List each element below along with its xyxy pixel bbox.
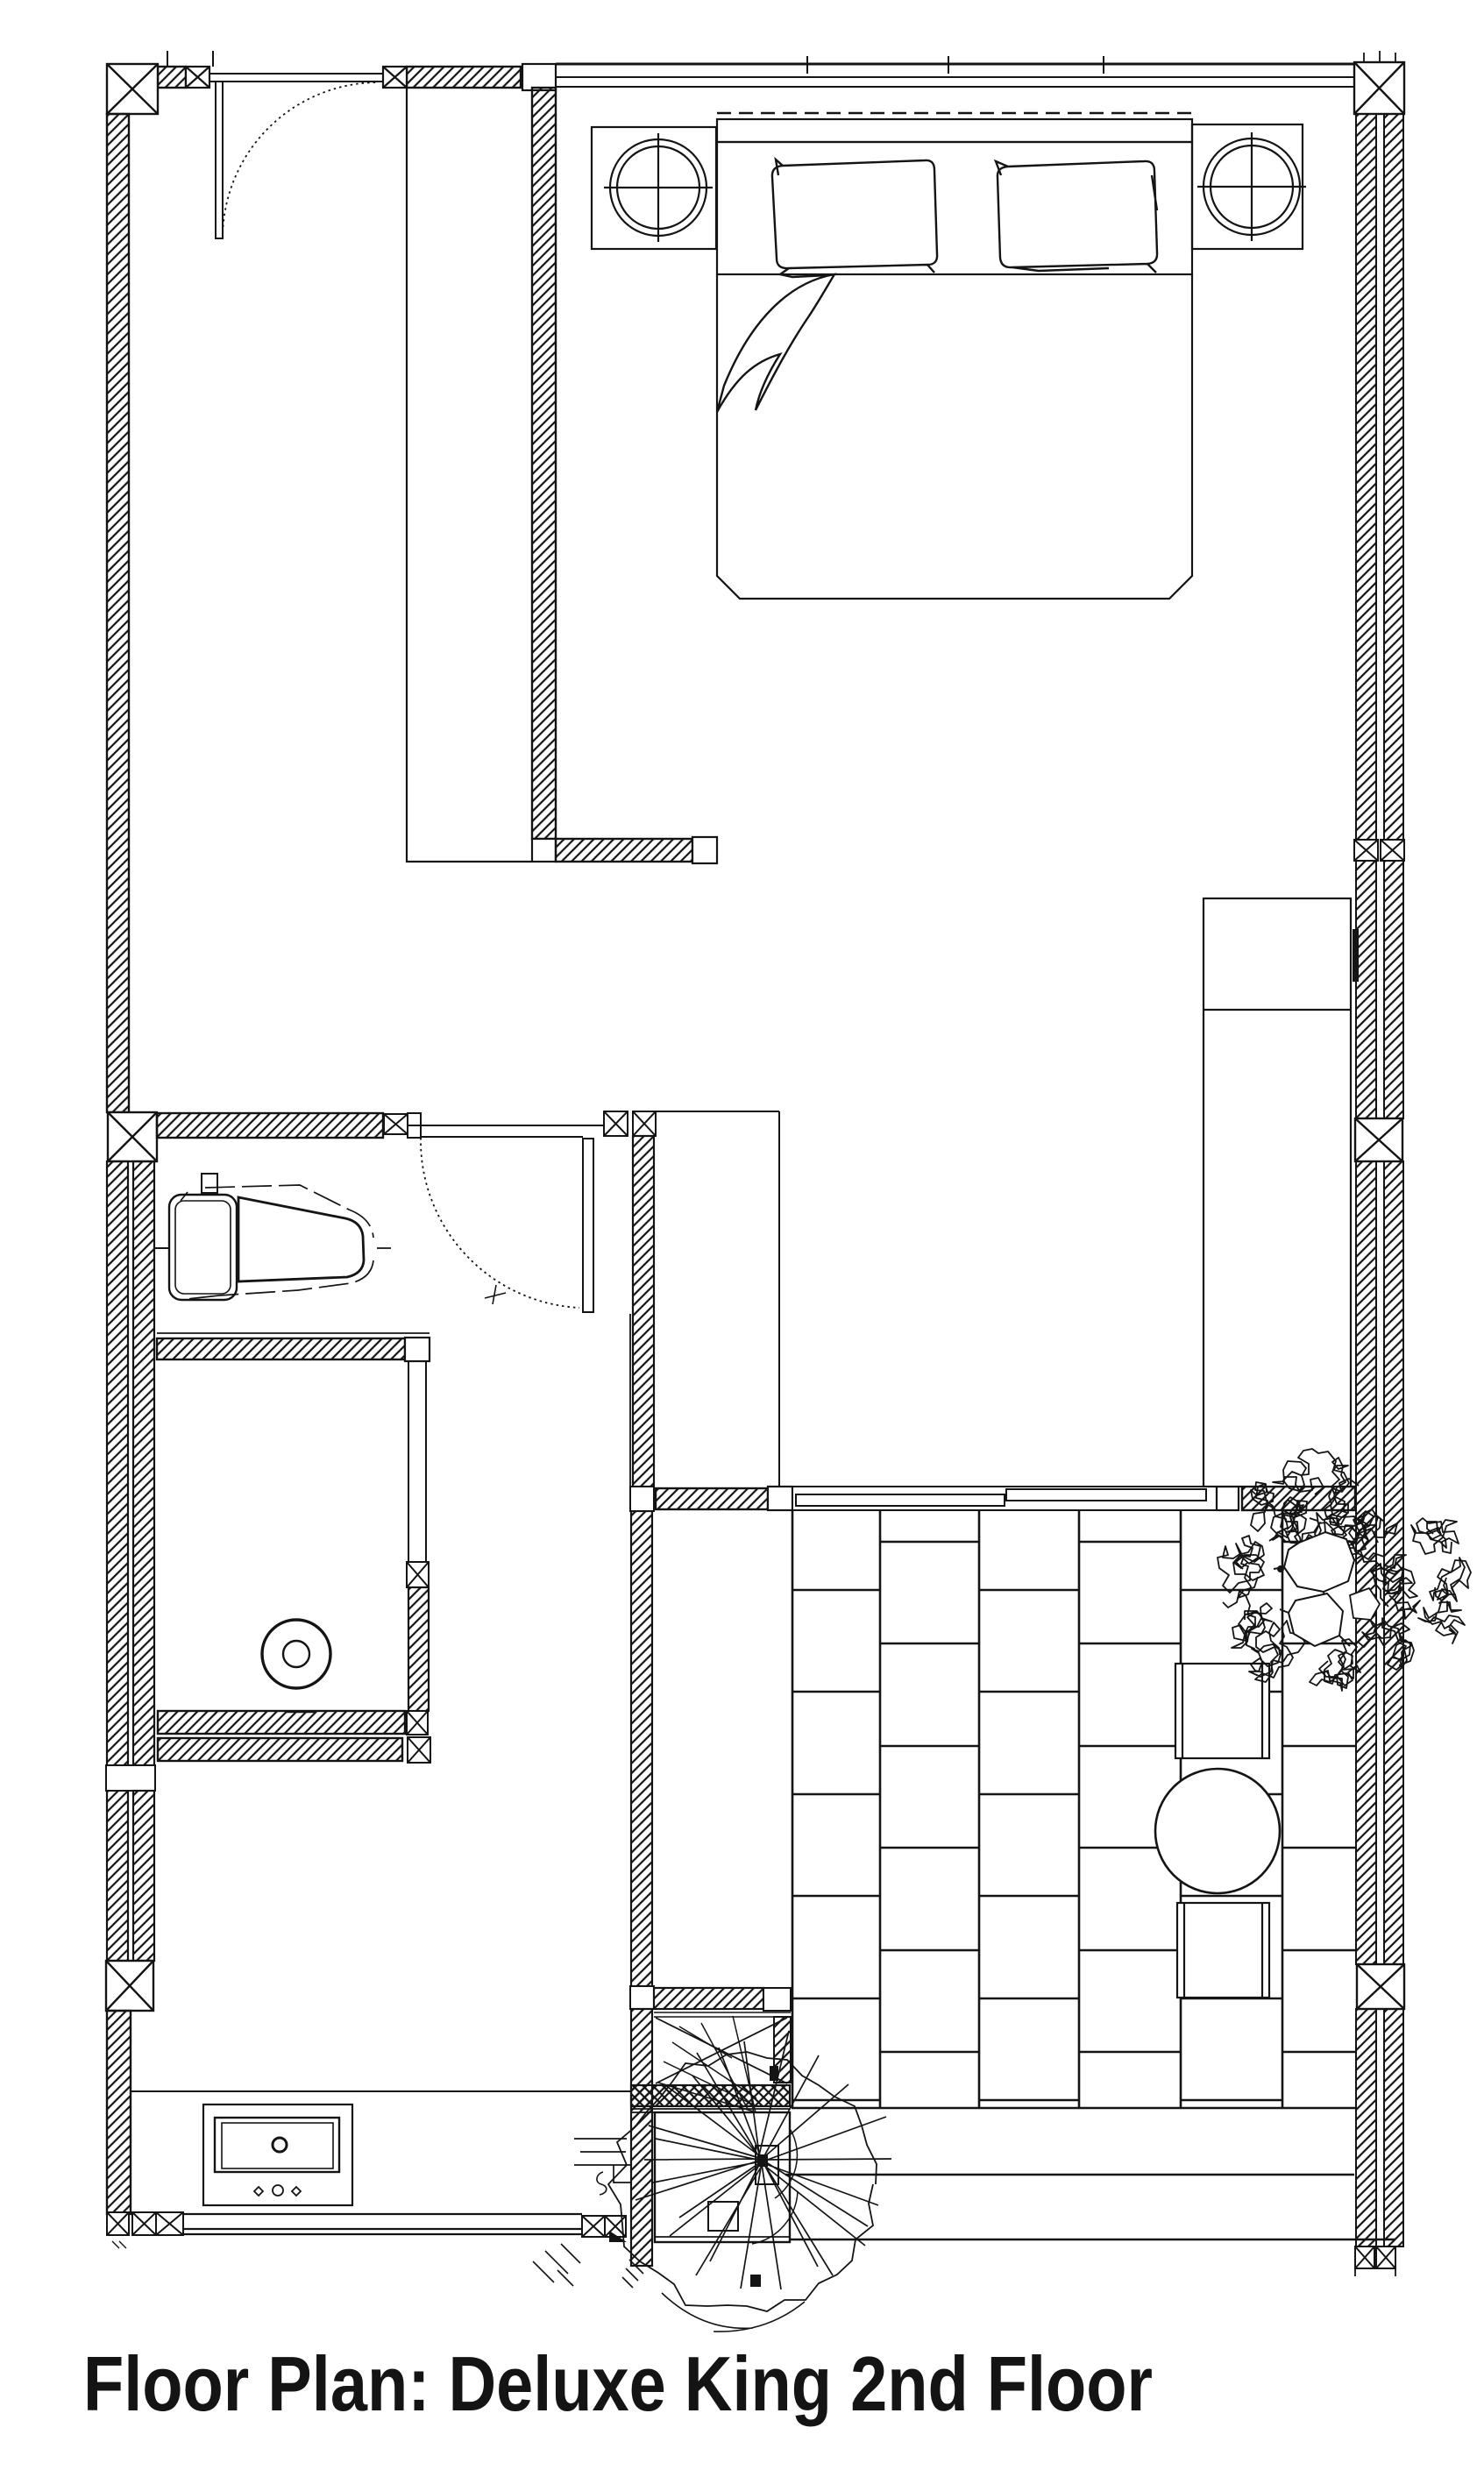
svg-text:Floor Plan: Deluxe King 2nd Fl: Floor Plan: Deluxe King 2nd Floor [83,2340,1153,2427]
